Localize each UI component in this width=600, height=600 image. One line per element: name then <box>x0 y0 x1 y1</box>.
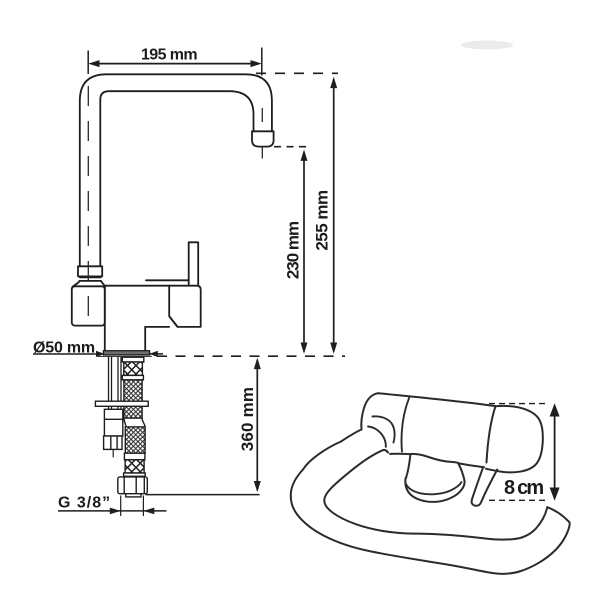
svg-text:8 cm: 8 cm <box>504 477 543 499</box>
svg-text:Ø50 mm: Ø50 mm <box>33 340 95 357</box>
svg-text:255 mm: 255 mm <box>313 190 332 251</box>
svg-text:360 mm: 360 mm <box>238 387 257 452</box>
svg-text:230 mm: 230 mm <box>284 221 303 279</box>
svg-text:195 mm: 195 mm <box>141 47 197 64</box>
svg-text:G 3/8”: G 3/8” <box>58 495 111 512</box>
